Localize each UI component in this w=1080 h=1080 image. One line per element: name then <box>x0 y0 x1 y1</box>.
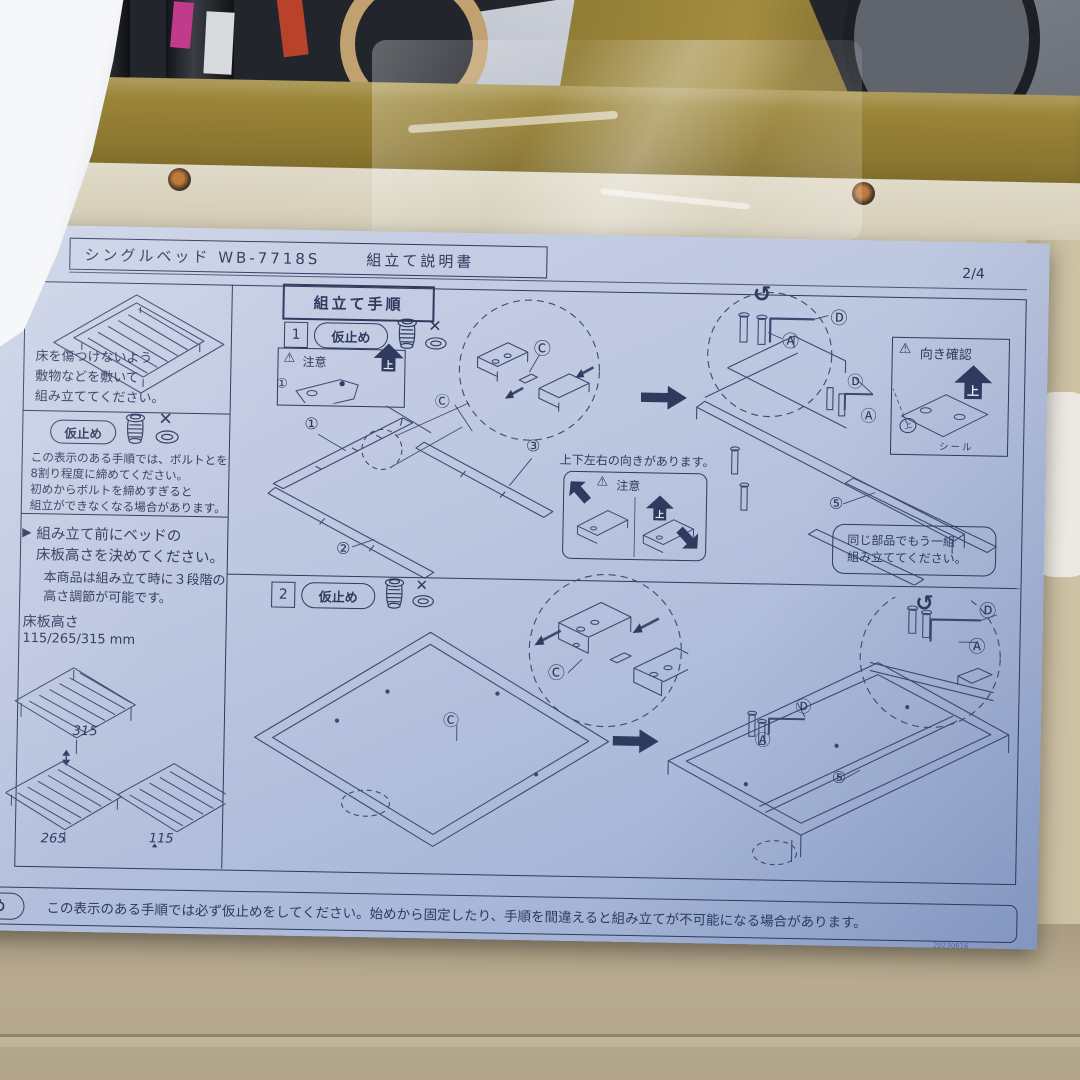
orientation-note: 上下左右の向きがあります。 <box>560 451 715 471</box>
tool-d-label: Ⓓ <box>979 596 996 621</box>
cardboard-bottom <box>0 924 1080 1080</box>
part1-label: ① <box>304 414 319 433</box>
detail-c-label: Ⓒ <box>534 334 551 359</box>
plastic-wrap <box>372 40 862 240</box>
karidome-badge-label: 仮止め <box>64 422 102 442</box>
bolt-a-label: Ⓐ <box>860 402 876 426</box>
caution-label: 注意 <box>616 477 640 494</box>
footer-date-stamp: 20230616 <box>933 942 969 951</box>
part2-label: ② <box>336 539 351 558</box>
height-frames-drawing <box>5 645 229 849</box>
doc-title: 組立て説明書 <box>366 249 474 272</box>
height-head-line2: 床板高さを決めてください。 <box>36 543 224 567</box>
seal-label: シール <box>939 439 974 454</box>
warning-triangle-icon: ⚠ <box>596 474 608 489</box>
same-parts-line2: 組み立ててください。 <box>847 548 995 568</box>
footer-karidome-badge: 仮止め <box>0 891 25 919</box>
height-265-label: 265 <box>41 831 66 846</box>
play-marker-icon: ▶ <box>22 525 31 539</box>
karidome-badge: 仮止め <box>50 419 116 444</box>
step2-frame-drawing <box>234 559 690 879</box>
detail-c-label: Ⓒ <box>443 707 459 731</box>
step2-assembly-drawing <box>654 593 1019 886</box>
floor-note-line1: 床を傷つけないよう <box>35 345 152 366</box>
orange-item <box>276 0 308 57</box>
floor-note-line2: 敷物などを敷いて <box>35 365 139 386</box>
height-sub-line2: 高さ調節が可能です。 <box>43 585 172 606</box>
rotate-arrow-icon: ↺ <box>915 591 934 616</box>
rotate-arrow-icon: ↺ <box>753 282 772 307</box>
part5-label: ⑤ <box>832 768 847 787</box>
part5-label: ⑤ <box>829 494 844 513</box>
bolt-a-label: Ⓐ <box>968 632 985 657</box>
corner-plate-drawing <box>895 384 996 442</box>
screw-head-left <box>168 168 191 191</box>
direction-check-box: ⚠ 向き確認 上 上 シール <box>890 337 1010 457</box>
instruction-sheet: シングルベッド WB-7718S 組立て説明書 2/4 床を傷つけないよう 敷物… <box>0 224 1050 950</box>
cross-icon: ✕ <box>158 409 173 429</box>
tool-d-label: Ⓓ <box>795 693 811 717</box>
photo-scene: シングルベッド WB-7718S 組立て説明書 2/4 床を傷つけないよう 敷物… <box>0 0 1080 1080</box>
orientation-callout: ⚠ 注意 上 <box>562 471 708 562</box>
detail-c-label: Ⓒ <box>548 659 565 684</box>
height-head-line1: 組み立て前にベッドの <box>36 522 181 546</box>
cardboard-crease-light <box>0 1037 1080 1047</box>
warning-triangle-icon: ⚠ <box>899 341 912 357</box>
orientation-blocks-drawing <box>563 496 706 559</box>
product-name: シングルベッド WB-7718S <box>84 243 320 268</box>
white-label <box>203 11 234 74</box>
tool-d-label: Ⓓ <box>847 368 863 392</box>
pink-label <box>170 1 194 49</box>
floor-note-line3: 組み立ててください。 <box>35 385 165 406</box>
height-315-label: 315 <box>73 724 98 739</box>
part3-label: ③ <box>526 436 541 455</box>
direction-check-label: 向き確認 <box>920 343 972 363</box>
footer-warning-text: この表示のある手順では必ず仮止めをしてください。始めから固定したり、手順を間違え… <box>46 896 867 931</box>
page-number: 2/4 <box>962 266 985 282</box>
bolt-a-label: Ⓐ <box>754 726 770 750</box>
background-shelf <box>0 0 1080 248</box>
tool-d-label: Ⓓ <box>830 304 847 329</box>
bolt-icon <box>124 413 147 447</box>
height-label: 床板高さ <box>23 611 79 632</box>
height-115-label: 115 <box>149 831 174 846</box>
same-parts-note-box: 同じ部品でもう一組 組み立ててください。 <box>832 524 997 577</box>
detail-c-label: Ⓒ <box>435 390 450 411</box>
bolt-a-label: Ⓐ <box>782 327 799 352</box>
washer-icon <box>154 429 180 444</box>
footer-karidome-label: 仮止め <box>0 895 6 916</box>
